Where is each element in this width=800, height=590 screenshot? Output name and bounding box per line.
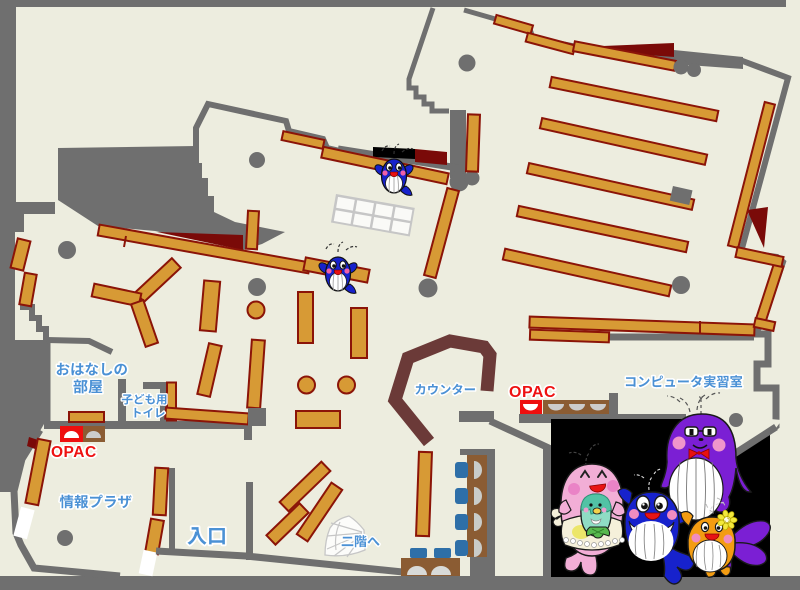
svg-text:OPAC: OPAC [51, 444, 97, 461]
svg-text:OPAC: OPAC [509, 384, 556, 401]
